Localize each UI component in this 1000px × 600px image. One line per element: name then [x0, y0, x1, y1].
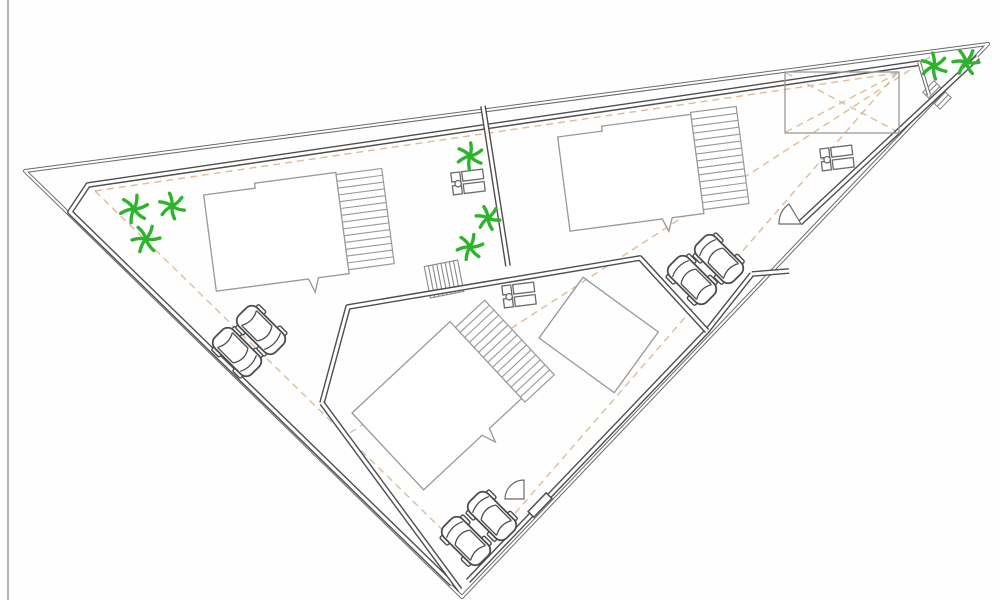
tree-3	[132, 226, 160, 251]
annex-south	[539, 277, 658, 392]
apex-corner-partition	[919, 62, 929, 95]
tree-1	[121, 195, 148, 222]
building-3	[352, 294, 560, 500]
gate-connector-wall	[752, 271, 789, 274]
tree-6	[457, 235, 482, 260]
gate-swing-north	[779, 204, 801, 224]
site-plan-canvas	[0, 0, 1000, 600]
equipment-parcel3	[502, 282, 536, 308]
tree-5	[476, 207, 500, 230]
tree-2	[160, 193, 185, 219]
gate-swing-south	[505, 480, 524, 499]
tree-7	[922, 53, 946, 79]
parcel-partition-wall	[483, 106, 508, 266]
equipment-parcel1	[451, 169, 485, 195]
tree-4	[458, 143, 481, 169]
inner-boundary-right-upper	[800, 57, 978, 223]
building-2	[557, 106, 751, 244]
equipment-parcel2	[820, 145, 854, 171]
building-1	[203, 167, 397, 306]
site-plan-drawing	[0, 0, 1000, 600]
